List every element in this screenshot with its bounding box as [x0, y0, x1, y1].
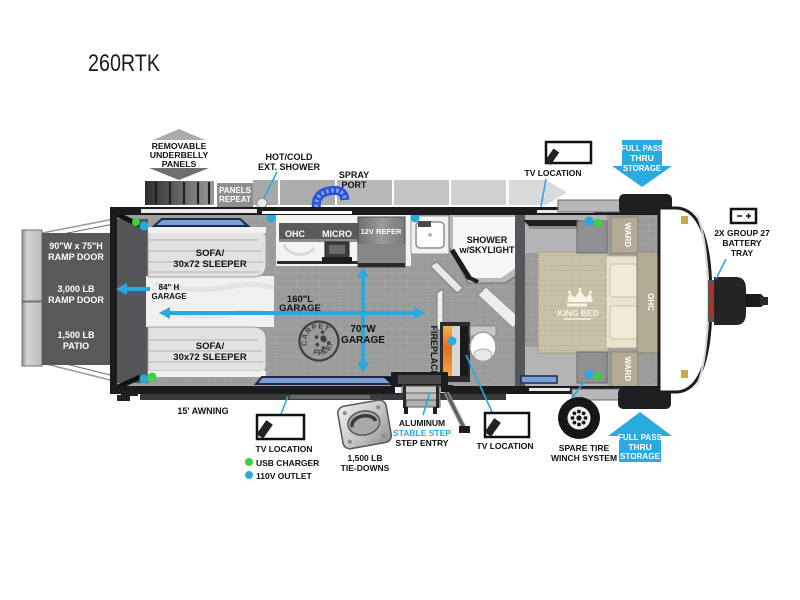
svg-text:STABLE STEP: STABLE STEP — [393, 428, 451, 438]
svg-text:TV LOCATION: TV LOCATION — [477, 441, 534, 451]
svg-text:PATIO: PATIO — [63, 341, 89, 351]
svg-text:STORAGE: STORAGE — [620, 451, 660, 461]
svg-text:30x72 SLEEPER: 30x72 SLEEPER — [173, 352, 247, 363]
svg-text:RAMP DOOR: RAMP DOOR — [48, 295, 104, 305]
svg-text:SPRAY: SPRAY — [339, 170, 369, 180]
svg-text:GARAGE: GARAGE — [151, 292, 187, 301]
svg-text:RAMP DOOR: RAMP DOOR — [48, 252, 104, 262]
svg-text:KING BED: KING BED — [557, 308, 599, 318]
svg-text:OHC: OHC — [646, 293, 655, 311]
svg-text:BATTERY: BATTERY — [722, 238, 762, 248]
svg-text:SOFA/: SOFA/ — [196, 341, 225, 352]
svg-text:70"W: 70"W — [350, 324, 376, 335]
svg-text:WARD: WARD — [623, 223, 632, 248]
svg-text:MICRO: MICRO — [322, 229, 352, 239]
svg-text:WARD: WARD — [623, 357, 632, 382]
svg-text:SHOWER: SHOWER — [467, 235, 508, 245]
svg-text:GARAGE: GARAGE — [341, 335, 385, 346]
svg-text:TRAY: TRAY — [731, 248, 754, 258]
svg-text:110V OUTLET: 110V OUTLET — [256, 471, 313, 481]
svg-text:STORAGE: STORAGE — [623, 163, 661, 173]
svg-text:1,500 LB: 1,500 LB — [57, 330, 95, 340]
svg-text:OHC: OHC — [285, 229, 306, 239]
svg-text:USB CHARGER: USB CHARGER — [256, 458, 319, 468]
svg-text:1,500 LB: 1,500 LB — [348, 453, 383, 463]
svg-text:3,000 LB: 3,000 LB — [57, 284, 95, 294]
svg-text:w/SKYLIGHT: w/SKYLIGHT — [458, 245, 515, 255]
svg-text:SOFA/: SOFA/ — [196, 248, 225, 259]
svg-text:THRU: THRU — [630, 153, 654, 163]
svg-text:2X GROUP 27: 2X GROUP 27 — [714, 228, 770, 238]
svg-text:260RTK: 260RTK — [88, 50, 160, 77]
svg-text:12V REFER: 12V REFER — [361, 227, 402, 236]
svg-text:TV LOCATION: TV LOCATION — [256, 444, 313, 454]
svg-text:15' AWNING: 15' AWNING — [177, 406, 228, 416]
svg-text:REPEAT: REPEAT — [219, 195, 251, 204]
svg-text:30x72 SLEEPER: 30x72 SLEEPER — [173, 259, 247, 270]
svg-text:PORT: PORT — [341, 180, 367, 190]
svg-text:PANELS: PANELS — [162, 159, 197, 169]
svg-text:84" H: 84" H — [159, 283, 180, 292]
svg-text:FULL PASS: FULL PASS — [618, 432, 662, 442]
svg-text:ALUMINUM: ALUMINUM — [399, 418, 445, 428]
svg-text:TIE-DOWNS: TIE-DOWNS — [341, 463, 390, 473]
svg-text:SPARE TIRE: SPARE TIRE — [559, 443, 610, 453]
svg-text:TV LOCATION: TV LOCATION — [525, 168, 582, 178]
svg-text:WINCH SYSTEM: WINCH SYSTEM — [551, 453, 617, 463]
svg-text:STEP ENTRY: STEP ENTRY — [396, 438, 449, 448]
svg-text:HOT/COLD: HOT/COLD — [266, 152, 313, 162]
svg-text:90"W x 75"H: 90"W x 75"H — [49, 241, 103, 251]
svg-text:FIREPLACE: FIREPLACE — [429, 325, 439, 376]
svg-text:GARAGE: GARAGE — [279, 303, 321, 314]
svg-text:EXT. SHOWER: EXT. SHOWER — [258, 162, 321, 172]
svg-text:PANELS: PANELS — [219, 186, 252, 195]
svg-text:FULL PASS: FULL PASS — [621, 143, 663, 153]
